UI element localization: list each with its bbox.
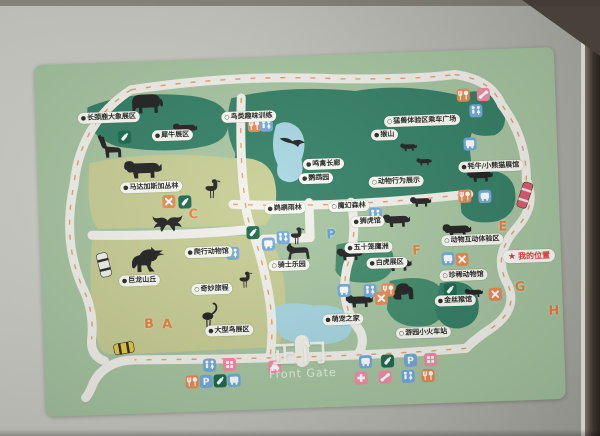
animal-quad-silhouette [383,214,410,228]
zone-letter: F [412,243,421,258]
zone-letter: H [548,304,559,319]
grid-icon [424,353,437,366]
hollow-bullet-icon: ○ [271,262,276,269]
feed-icon [118,130,131,143]
filled-bullet-icon: ● [267,205,272,212]
zone-letter: E [498,219,507,234]
parking-icon [199,375,212,388]
zone-letter: A [162,317,173,332]
filled-bullet-icon: ● [122,277,127,284]
filled-bullet-icon: ● [302,175,307,182]
bus-icon [463,137,476,150]
map-label: ○动物行为展示 [368,175,424,188]
food-icon [185,375,198,388]
map-label: ●白虎展区 [366,257,408,270]
map-label: ●金丝猴馆 [435,294,477,307]
filled-bullet-icon: ● [369,260,374,267]
phone-icon [378,370,391,383]
map-label: ○骑士乐园 [268,259,310,272]
filled-bullet-icon: ● [353,218,358,225]
map-label: ●萌宠之家 [322,313,364,326]
gate-title: 正门 [268,333,337,370]
map-label: ○奇妙旅程 [191,283,233,296]
bus-icon [337,284,350,297]
toilet-icon [276,231,289,244]
zone-letter: C [188,207,198,222]
map-label: ●鹈鹕雨林 [264,202,306,215]
map-label: ●鸣禽长廊 [303,158,345,171]
map-label: ●犀牛展区 [152,129,194,142]
photo-bottom-edge [0,429,600,436]
animal-horse-silhouette [287,243,310,260]
toilet-icon [401,370,414,383]
parking-icon [404,353,417,366]
feed-icon [381,354,394,367]
toilet-icon [203,359,216,372]
board-right-edge [585,0,600,436]
map-label: ○鸟类趣味训练 [221,110,277,123]
x-icon [375,291,388,304]
hollow-bullet-icon: ○ [372,179,377,186]
my-location-marker: ★我的位置 [503,249,556,264]
feed-icon [246,226,259,239]
bus-icon [441,252,454,265]
zone-letter: P [326,227,336,242]
food-icon [458,190,471,203]
filled-bullet-icon: ● [81,115,86,122]
x-icon [489,287,502,300]
photo-background: P [0,0,600,436]
filled-bullet-icon: ● [347,245,352,252]
filled-bullet-icon: ● [461,164,466,171]
phone-icon [477,88,490,101]
toilet-icon [469,104,482,117]
photo-top-edge [0,0,600,6]
map-label: ●巨龙山丘 [119,274,161,287]
zone-letter: G [514,280,525,295]
hollow-bullet-icon: ○ [331,203,336,210]
x-icon [162,195,175,208]
my-location-label: 我的位置 [518,251,550,261]
bus-icon [478,190,491,203]
filled-bullet-icon: ● [438,297,443,304]
bus-icon [227,374,240,387]
front-gate-label: 正门 Front Gate [268,333,337,381]
map-label: ●五十笼鹰洲 [344,241,393,254]
hollow-bullet-icon: ○ [444,237,449,244]
zoo-map: P [34,47,566,417]
map-label: ●狮虎馆 [350,215,385,227]
grid-icon [223,358,236,371]
filled-bullet-icon: ● [123,184,128,191]
bus-icon [262,237,275,250]
map-label: ●大型鸟展区 [205,324,254,337]
map-label: ●猴山 [371,129,399,141]
bus-icon [359,355,372,368]
filled-bullet-icon: ● [155,132,160,139]
gate-subtitle: Front Gate [269,366,337,381]
hollow-bullet-icon: ○ [194,286,199,293]
zoo-map-photo: { "map": { "gate": { "title": "正门", "sub… [0,0,600,436]
map-label: ○游园小火车站 [396,326,452,339]
map-label: ●爬行动物馆 [184,246,233,259]
food-icon [457,88,470,101]
cross-icon [354,371,367,384]
map-label: ●鹦鹉园 [299,172,334,184]
food-icon [421,369,434,382]
filled-bullet-icon: ● [187,249,192,256]
feed-icon [213,374,226,387]
hollow-bullet-icon: ○ [442,272,447,279]
filled-bullet-icon: ● [374,132,379,139]
hollow-bullet-icon: ○ [224,114,229,121]
map-label: ○魔幻森林 [328,200,370,213]
hollow-bullet-icon: ○ [387,118,392,125]
filled-bullet-icon: ● [306,161,311,168]
x-icon [455,253,468,266]
zone-letter: B [144,317,154,332]
location-star-icon: ★ [508,252,516,262]
hollow-bullet-icon: ○ [399,330,404,337]
map-label: ○珍稀动物馆 [439,269,488,282]
filled-bullet-icon: ● [208,327,213,334]
filled-bullet-icon: ● [325,316,330,323]
